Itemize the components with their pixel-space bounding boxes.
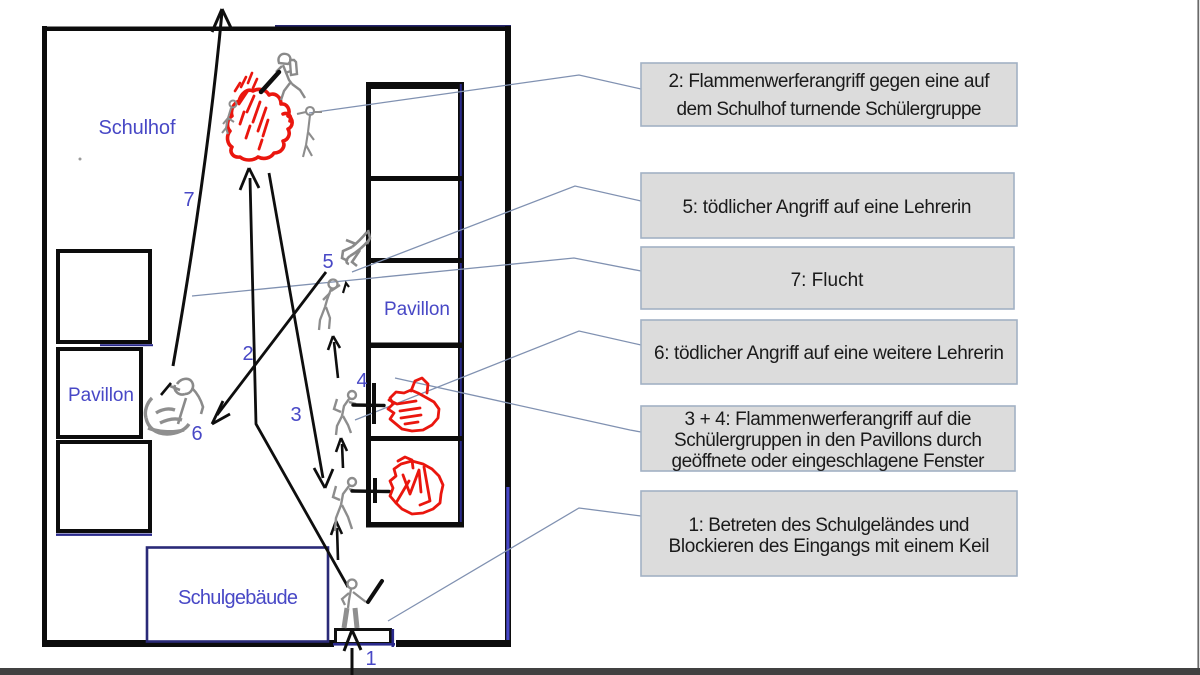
svg-text:2: Flammenwerferangriff gegen: 2: Flammenwerferangriff gegen eine auf xyxy=(669,71,991,92)
svg-text:geöffnete oder eingeschlagene: geöffnete oder eingeschlagene Fenster xyxy=(672,451,986,472)
svg-text:3: 3 xyxy=(290,404,301,426)
svg-text:Pavillon: Pavillon xyxy=(384,299,450,320)
svg-text:3 + 4: Flammenwerferangriff au: 3 + 4: Flammenwerferangriff auf die xyxy=(685,409,972,430)
svg-text:7: 7 xyxy=(183,189,194,211)
svg-text:Pavillon: Pavillon xyxy=(68,385,134,406)
svg-text:Schulhof: Schulhof xyxy=(99,117,176,139)
svg-text:1: Betreten des Schulgeländes: 1: Betreten des Schulgeländes und xyxy=(689,515,970,536)
svg-text:5: 5 xyxy=(322,251,333,273)
svg-text:2: 2 xyxy=(242,343,253,365)
svg-text:5: tödlicher Angriff auf eine: 5: tödlicher Angriff auf eine Lehrerin xyxy=(683,197,972,218)
svg-text:6: tödlicher Angriff auf eine: 6: tödlicher Angriff auf eine weitere Le… xyxy=(654,343,1004,364)
svg-text:7: Flucht: 7: Flucht xyxy=(791,270,865,291)
svg-text:Schülergruppen in den Pavillon: Schülergruppen in den Pavillons durch xyxy=(674,430,982,451)
svg-text:Blockieren des Eingangs mit ei: Blockieren des Eingangs mit einem Keil xyxy=(669,536,990,557)
svg-text:Schulgebäude: Schulgebäude xyxy=(178,587,298,609)
svg-text:1: 1 xyxy=(365,648,376,670)
svg-text:4: 4 xyxy=(356,370,367,392)
svg-text:dem Schulhof turnende Schülerg: dem Schulhof turnende Schülergruppe xyxy=(677,99,982,120)
svg-text:6: 6 xyxy=(191,423,202,445)
